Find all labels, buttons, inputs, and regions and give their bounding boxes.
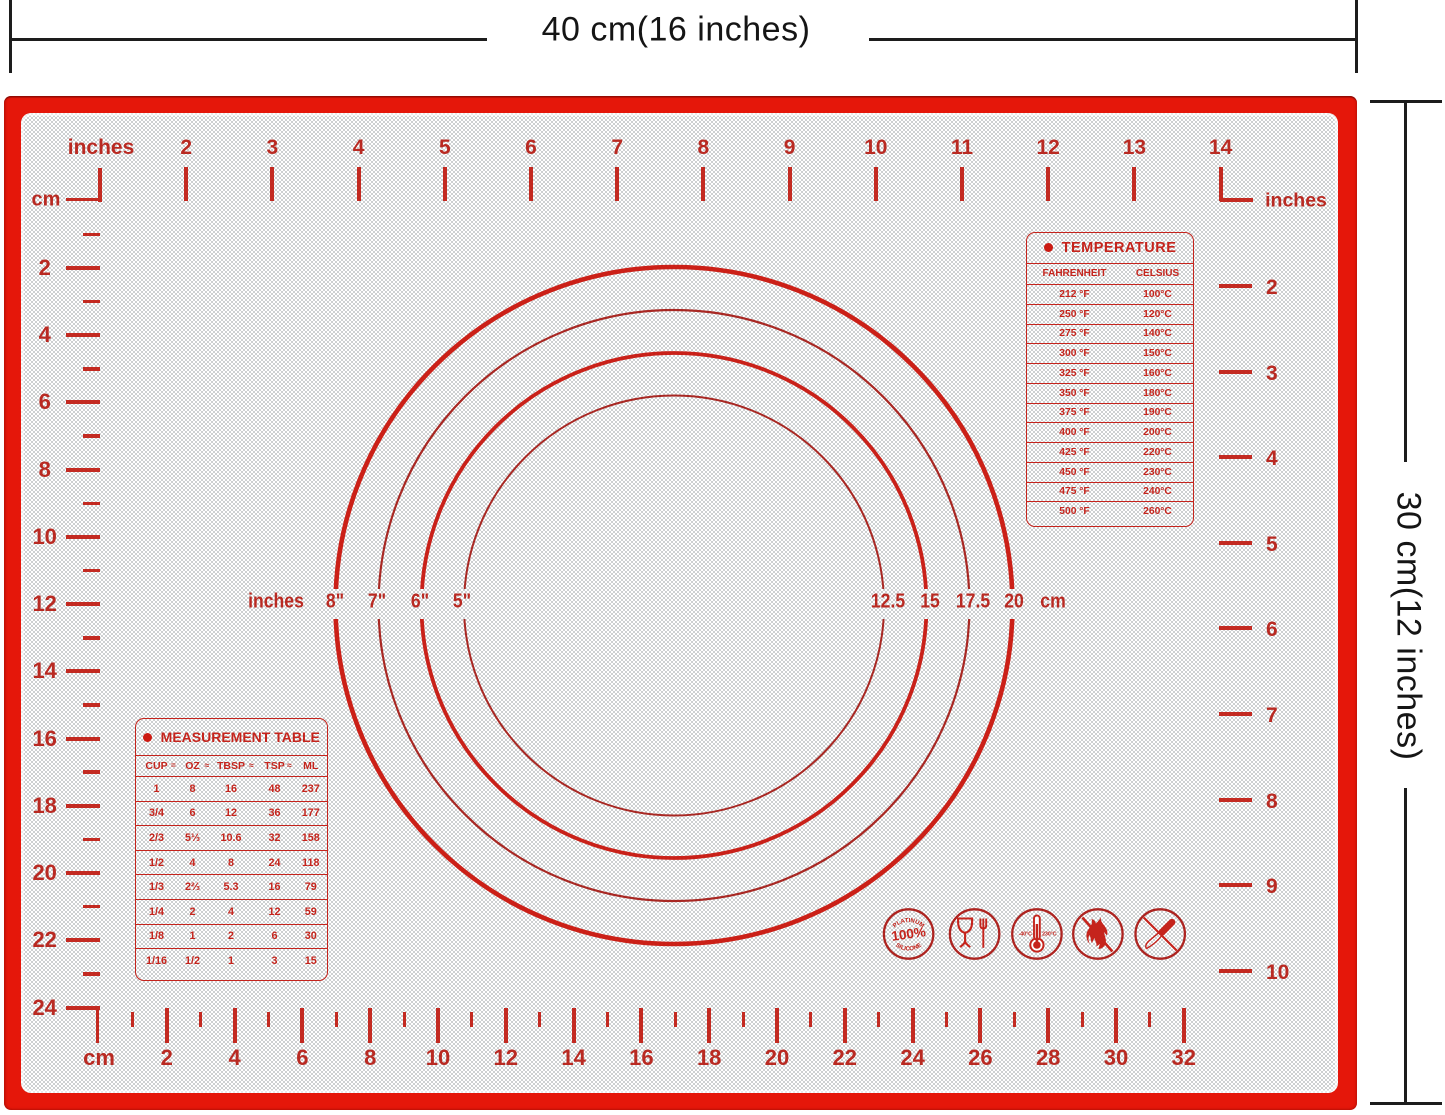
svg-text:-40°C: -40°C xyxy=(1019,932,1033,938)
svg-text:230°C: 230°C xyxy=(1042,932,1057,938)
svg-text:SILICONE: SILICONE xyxy=(894,943,923,953)
